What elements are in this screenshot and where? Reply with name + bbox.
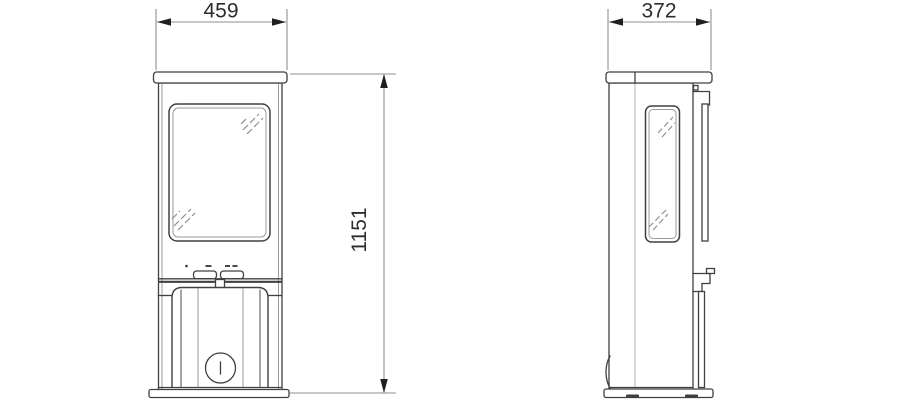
door-hinge-notch [694,86,699,91]
arrowhead-right-icon [272,18,286,26]
front-base-plinth [149,390,289,398]
drawing-canvas: 459 372 1151 [0,0,900,400]
door-edge-upper-strip [702,104,708,241]
front-view [149,72,289,398]
arrowhead-bottom-icon [380,379,388,393]
control-lever-left [194,271,217,279]
front-door-edge-profile [693,86,715,388]
door-edge-lower-strip [699,292,705,388]
front-top-plate [154,72,288,83]
arrowhead-left-icon [609,18,623,26]
arrowhead-left-icon [157,18,171,26]
door-handle-pin [707,269,715,274]
side-body [609,83,693,390]
door-handle-bracket [693,274,710,292]
height-dimension: 1151 [290,74,396,393]
arrowhead-right-icon [696,18,710,26]
door-edge-top-bracket [693,92,710,106]
side-view [604,72,715,398]
width-dimension-front: 459 [156,0,287,70]
width-dimension-label: 459 [203,0,238,23]
depth-dimension-side: 372 [608,0,711,70]
control-lever-right [221,271,244,279]
arrowhead-top-icon [380,74,388,88]
depth-dimension-label: 372 [641,0,676,23]
side-top-plate [606,72,712,83]
base-foot [685,395,698,398]
indicator-dot [185,265,188,268]
base-foot [626,395,639,398]
stove-dimension-drawing: 459 372 1151 [0,0,900,400]
height-dimension-label: 1151 [348,207,371,252]
